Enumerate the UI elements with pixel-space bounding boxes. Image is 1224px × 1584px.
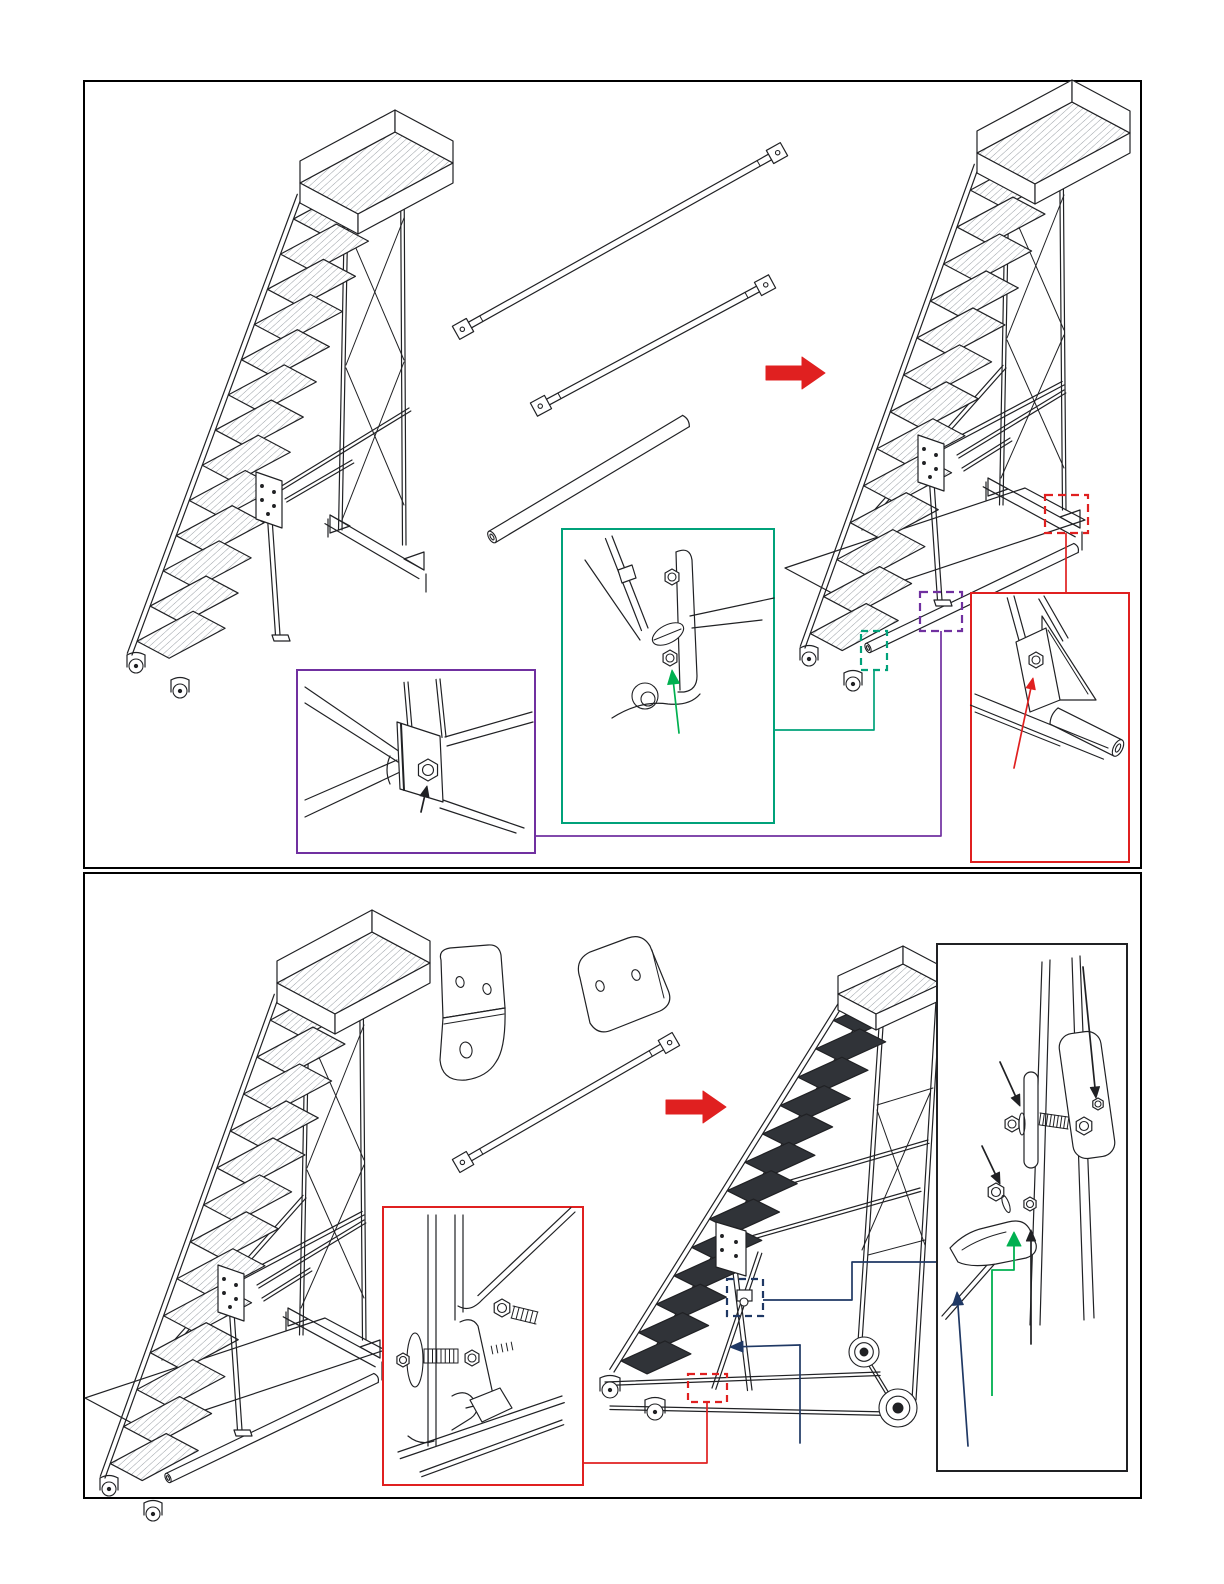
hinge-rivet — [923, 448, 926, 451]
tab-bolt-hole — [538, 404, 542, 408]
bolt-shank — [1095, 1101, 1101, 1107]
wheel-hub — [860, 1348, 868, 1356]
caster-axle — [134, 664, 137, 667]
hinge-rivet — [273, 491, 276, 494]
bolt-shank — [400, 1357, 407, 1364]
hinge-plate — [256, 472, 282, 528]
caster-axle — [608, 1388, 611, 1391]
detail-box-rear-foot-gusset-bolt-detail — [970, 593, 1129, 862]
tab-bolt-hole — [460, 327, 464, 331]
tab-bolt-hole — [775, 151, 779, 155]
bolt-shank — [666, 654, 674, 662]
hinge-rivet — [267, 513, 270, 516]
detail-box-strut-spring-bolt-detail — [383, 1207, 583, 1485]
bolt-shank — [1032, 656, 1040, 664]
hinge-rivet — [929, 476, 932, 479]
hinge-rivet — [923, 462, 926, 465]
strut-fitting-nut — [740, 1298, 748, 1306]
bracket-upper-face — [440, 945, 505, 1018]
bolt-shank — [1080, 1122, 1089, 1131]
tab-bolt-hole — [667, 1040, 671, 1044]
tab-bolt-hole — [460, 1160, 464, 1164]
caster-axle — [851, 682, 854, 685]
bolt-shank — [1008, 1120, 1016, 1128]
hinge-rivet — [935, 454, 938, 457]
caster-axle — [178, 689, 181, 692]
hinge-rivet — [721, 1235, 724, 1238]
bolt-shank — [423, 765, 434, 776]
leg-foot-pad — [934, 600, 952, 606]
hinge-rivet — [935, 468, 938, 471]
hinge-rivet — [261, 499, 264, 502]
clamp-flange-plate — [1024, 1072, 1038, 1168]
detail-box-hinge-leg-foot-bolt-detail — [297, 670, 535, 853]
bolt-shank — [668, 573, 676, 581]
bolt-shank — [468, 1354, 476, 1362]
hinge-rivet — [261, 485, 264, 488]
bolt-shank — [498, 1304, 507, 1313]
wheel-hub — [893, 1403, 903, 1413]
bolt-shank — [992, 1188, 1001, 1197]
hinge-rivet — [735, 1255, 738, 1258]
detail-box-front-foot-plate-bolts-detail — [562, 529, 774, 823]
instruction-page — [0, 0, 1224, 1584]
leg-foot-pad — [272, 635, 290, 641]
detail-box-leg-clamp-bolt-detail — [937, 944, 1127, 1471]
hinge-rivet — [735, 1241, 738, 1244]
caster-axle — [653, 1410, 656, 1413]
bolt-shank — [1027, 1201, 1034, 1208]
caster-axle — [807, 657, 810, 660]
tab-bolt-hole — [764, 283, 768, 287]
hinge-rivet — [273, 505, 276, 508]
hinge-plate — [918, 435, 944, 491]
diagram-canvas — [0, 0, 1224, 1584]
bent-lock-bracket-part — [440, 945, 505, 1080]
hinge-rivet — [721, 1249, 724, 1252]
